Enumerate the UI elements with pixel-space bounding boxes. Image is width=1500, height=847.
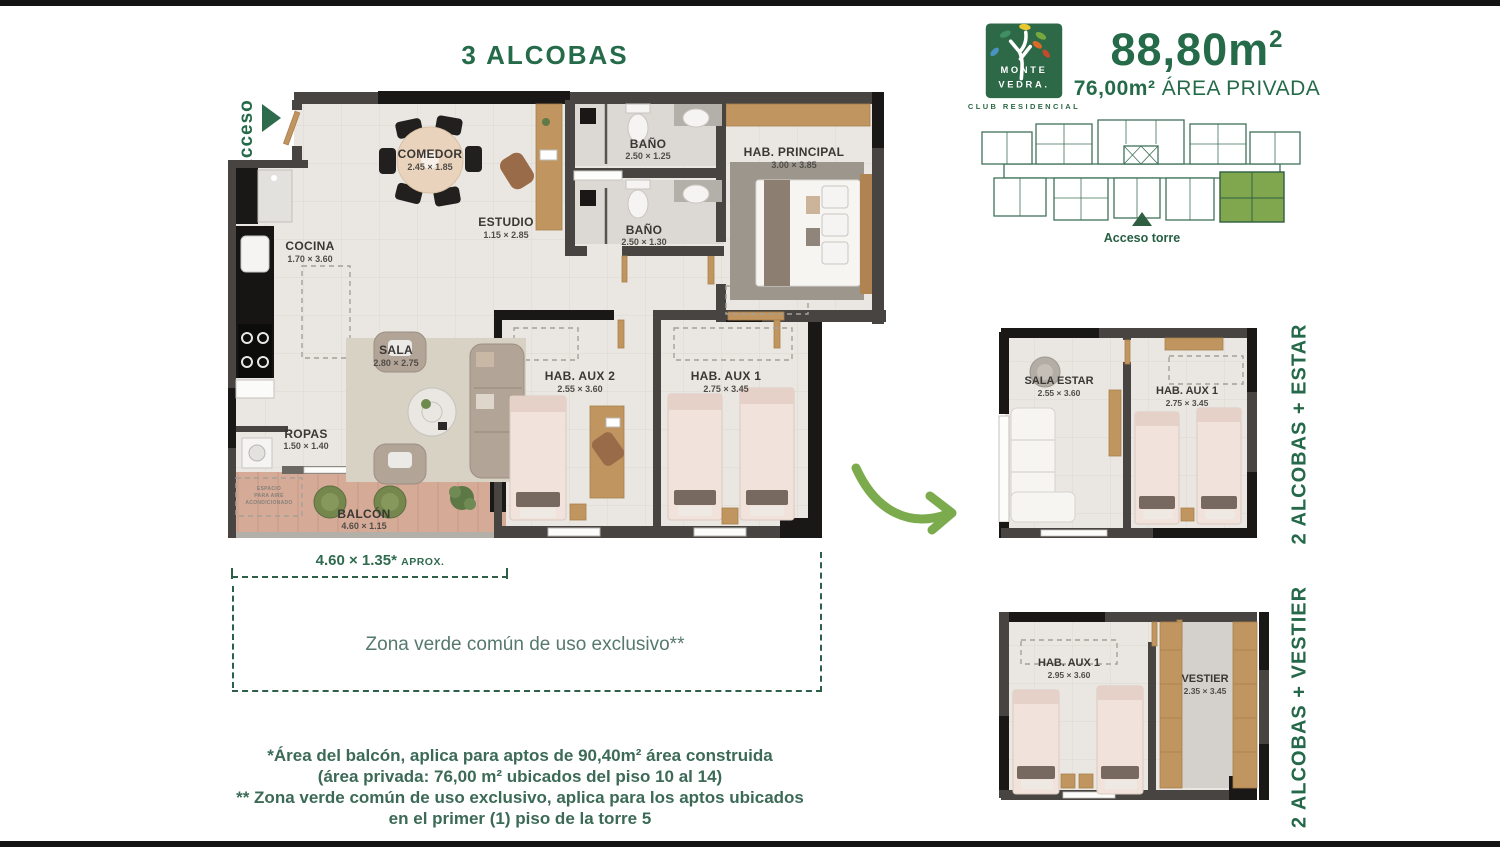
room-label-bano2: BAÑO <box>626 222 663 237</box>
footnote-line1: *Área del balcón, aplica para aptos de 9… <box>230 745 810 766</box>
closet <box>1160 622 1182 788</box>
ac-note-line1: ESPACIO <box>257 486 281 492</box>
room-dims-vestier: 2.35 × 3.45 <box>1184 686 1227 696</box>
dimension-line <box>232 576 508 578</box>
ac-note-line2: PARA AIRE <box>254 493 284 499</box>
footnote-line3: ** Zona verde común de uso exclusivo, ap… <box>230 787 810 808</box>
shower-icon <box>580 190 596 206</box>
room-dims-hab-aux1: 2.75 × 3.45 <box>1166 398 1209 408</box>
room-dims-bano2: 2.50 × 1.30 <box>621 237 666 247</box>
elevator-icon <box>1124 146 1158 164</box>
sofa <box>1011 408 1055 506</box>
brand-logo: MONTE VEDRA. <box>984 18 1064 100</box>
green-zone-border-left <box>232 586 234 688</box>
room-label-vestier: VESTIER <box>1181 673 1228 685</box>
logo-subtitle: CLUB RESIDENCIAL <box>962 102 1086 111</box>
room-label-cocina: COCINA <box>285 239 334 253</box>
room-dims-hab-aux1: 2.75 × 3.45 <box>703 384 748 394</box>
room-label-estudio: ESTUDIO <box>478 215 533 229</box>
room-label-sala: SALA <box>379 343 413 357</box>
tower-access-label: Acceso torre <box>1104 231 1180 245</box>
green-zone-border-bottom <box>232 690 822 692</box>
logo-line1: MONTE <box>1000 65 1047 75</box>
private-area: 76,00m² ÁREA PRIVADA <box>1072 77 1322 101</box>
dimension-tick-right <box>506 568 508 579</box>
total-area: 88,80m2 <box>1072 14 1322 76</box>
room-dims-estudio: 1.15 × 2.85 <box>483 230 528 240</box>
room-dims-hab-principal: 3.00 × 3.85 <box>771 160 816 170</box>
room-label-hab-aux2: HAB. AUX 2 <box>545 369 616 383</box>
top-border-bar <box>0 0 1500 6</box>
main-floor-plan: ESPACIO PARA AIRE ACONDICIONADO COMEDOR … <box>228 88 893 560</box>
room-dims-hab-aux1: 2.95 × 3.60 <box>1048 670 1091 680</box>
room-label-ropas: ROPAS <box>284 427 327 441</box>
vestier-corridor-floor <box>1182 622 1233 788</box>
variant-arrow-icon <box>842 456 972 550</box>
balcony-rail <box>230 532 508 538</box>
room-label-hab-aux1: HAB. AUX 1 <box>1038 657 1100 669</box>
master-bedroom-furniture <box>730 162 872 300</box>
room-dims-sala-estar: 2.55 × 3.60 <box>1038 388 1081 398</box>
shower-icon <box>580 108 596 124</box>
room-dims-cocina: 1.70 × 3.60 <box>287 254 332 264</box>
area-summary: 88,80m2 76,00m² ÁREA PRIVADA <box>1072 14 1322 101</box>
room-dims-hab-aux2: 2.55 × 3.60 <box>557 384 602 394</box>
tower-key-plan: Acceso torre <box>966 116 1316 246</box>
room-label-bano1: BAÑO <box>630 136 667 151</box>
room-label-hab-aux1: HAB. AUX 1 <box>691 369 762 383</box>
basin-icon <box>683 185 709 203</box>
room-dims-sala: 2.80 × 2.75 <box>373 358 418 368</box>
variant-plan-vestier: HAB. AUX 1 2.95 × 3.60 VESTIER 2.35 × 3.… <box>997 608 1273 804</box>
balcony-dimension: 4.60 × 1.35* APROX. <box>250 552 510 569</box>
basin-icon <box>683 109 709 127</box>
coffee-table <box>408 388 456 436</box>
variant-plan-estar: SALA ESTAR 2.55 × 3.60 HAB. AUX 1 2.75 ×… <box>997 324 1273 546</box>
footnotes: *Área del balcón, aplica para aptos de 9… <box>230 745 810 829</box>
room-label-hab-aux1: HAB. AUX 1 <box>1156 385 1218 397</box>
room-dims-ropas: 1.50 × 1.40 <box>283 441 328 451</box>
logo-line2: VEDRA. <box>998 79 1049 89</box>
room-label-hab-principal: HAB. PRINCIPAL <box>744 145 845 159</box>
living-room-furniture <box>346 332 526 484</box>
footnote-line4: en el primer (1) piso de la torre 5 <box>230 808 810 829</box>
room-dims-balcon: 4.60 × 1.15 <box>341 521 386 531</box>
stove-icon <box>238 324 272 378</box>
brochure-page: 3 ALCOBAS Acceso <box>0 0 1500 847</box>
sink-icon <box>241 236 269 272</box>
toilet-icon <box>628 190 648 218</box>
closet <box>1233 622 1257 788</box>
room-label-balcon: BALCÓN <box>337 506 390 521</box>
variant-vestier-title: 2 ALCOBAS + VESTIER <box>1289 586 1312 828</box>
room-label-sala-estar: SALA ESTAR <box>1024 375 1093 387</box>
green-zone-border-right <box>820 552 822 692</box>
room-label-comedor: COMEDOR <box>398 147 463 161</box>
dimension-tick-left <box>231 568 233 579</box>
bottom-border-bar <box>0 841 1500 847</box>
footnote-line2: (área privada: 76,00 m² ubicados del pis… <box>230 766 810 787</box>
room-dims-bano1: 2.50 × 1.25 <box>625 151 670 161</box>
green-zone-label: Zona verde común de uso exclusivo** <box>290 634 760 656</box>
ac-note-line3: ACONDICIONADO <box>245 500 292 506</box>
room-dims-comedor: 2.45 × 1.85 <box>407 162 452 172</box>
variant-estar-title: 2 ALCOBAS + ESTAR <box>1289 324 1312 545</box>
page-title: 3 ALCOBAS <box>400 40 690 71</box>
